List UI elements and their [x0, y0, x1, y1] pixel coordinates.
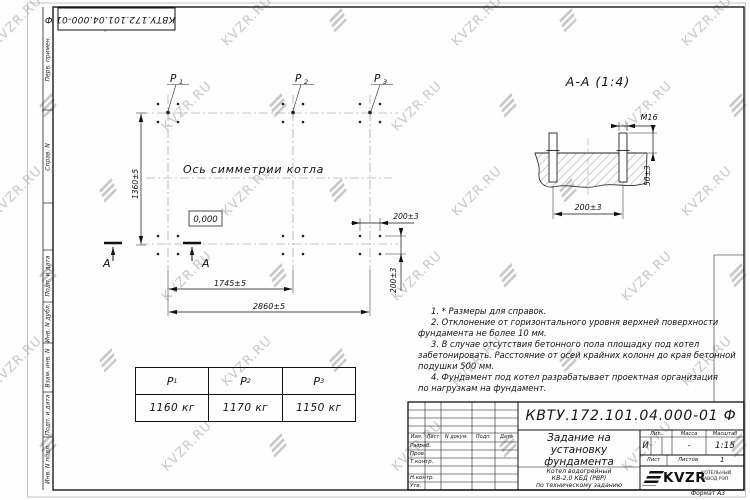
p3-header: P — [313, 375, 320, 388]
title-line: фундамента — [519, 456, 639, 468]
load-value: 1150 кг — [282, 395, 355, 421]
p1-header: P — [167, 375, 174, 388]
note-line: подушки 500 мм. — [418, 361, 718, 372]
plan-view — [104, 85, 414, 317]
company-subtitle: КОТЕЛЬНЫЙ ЗАВОД РЭП — [701, 471, 731, 482]
note-line: 1. * Размеры для справок. — [418, 306, 718, 317]
elevation-mark: 0,000 — [193, 215, 217, 225]
boiler-axis-label: Ось симметрии котла — [183, 163, 324, 176]
load-value: 1170 кг — [208, 395, 281, 421]
dim-bolt-x: 200±3 — [393, 212, 419, 221]
section-letter-left: А — [102, 257, 111, 270]
title-line: установку — [519, 444, 639, 456]
p2-label: P — [295, 73, 302, 85]
section-title: А-А (1:4) — [565, 74, 630, 89]
anchor-bolts-plan — [157, 103, 382, 256]
title-line: Задание на — [519, 432, 639, 444]
product-line: КВ-2,0 КБД (РВР) — [519, 475, 639, 482]
load-table-value-row: 1160 кг 1170 кг 1150 кг — [136, 395, 355, 421]
note-line: забетонировать. Расстояние от осей крайн… — [418, 350, 718, 361]
dim-protrusion: 50±3 — [643, 165, 652, 186]
product-name: Котел водогрейный КВ-2,0 КБД (РВР) по те… — [519, 468, 639, 490]
note-line: 2. Отклонение от горизонтального уровня … — [418, 317, 718, 328]
p2-sub: 2 — [304, 78, 308, 86]
load-table-header: P1 — [136, 368, 208, 394]
note-line: 4. Фундамент под котел разрабатывает про… — [418, 372, 718, 383]
p3-label: P — [374, 73, 381, 85]
company-subtitle-line: ЗАВОД РЭП — [701, 477, 731, 483]
section-letter-right: А — [201, 257, 210, 270]
load-table-header-row: P1 P2 P3 — [136, 368, 355, 395]
drawing-linework: P 1 P 2 P 3 Ось симметрии котла 0,000 13… — [0, 0, 750, 500]
load-table: P1 P2 P3 1160 кг 1170 кг 1150 кг — [135, 367, 356, 422]
p2-header-sub: 2 — [247, 377, 251, 385]
dim-1745: 1745±5 — [214, 279, 246, 288]
kvzr-logo-text: KVZR — [663, 467, 706, 489]
load-value: 1160 кг — [136, 395, 208, 421]
note-line: 3. В случае отсутствия бетонного пола пл… — [418, 339, 718, 350]
load-table-header: P3 — [282, 368, 355, 394]
company-subtitle-line: КОТЕЛЬНЫЙ — [701, 471, 731, 477]
p2-header: P — [240, 375, 247, 388]
product-line: по техническому заданию — [519, 482, 639, 489]
load-table-header: P2 — [208, 368, 281, 394]
p1-sub: 1 — [179, 78, 183, 86]
note-line: по нагрузкам на фундамент. — [418, 383, 718, 394]
p3-sub: 3 — [383, 78, 387, 86]
p3-header-sub: 3 — [320, 377, 324, 385]
note-line: фундамента не более 10 мм. — [418, 328, 718, 339]
dim-1360: 1360±5 — [131, 169, 140, 199]
product-line: Котел водогрейный — [519, 468, 639, 475]
top-stamp-doc-number: КВТУ.172.101.04.000-01 Ф — [58, 8, 175, 30]
thread-label: М16 — [640, 113, 657, 122]
dim-spacing: 200±3 — [574, 203, 601, 212]
dim-2860: 2860±5 — [253, 302, 285, 311]
dim-bolt-y: 200±3 — [389, 267, 398, 293]
p1-header-sub: 1 — [173, 377, 177, 385]
p1-label: P — [170, 73, 177, 85]
section-cut-marks — [104, 243, 201, 261]
drawing-title: Задание на установку фундамента — [519, 432, 639, 468]
load-leaders — [166, 85, 393, 115]
notes: 1. * Размеры для справок. 2. Отклонение … — [418, 306, 718, 394]
